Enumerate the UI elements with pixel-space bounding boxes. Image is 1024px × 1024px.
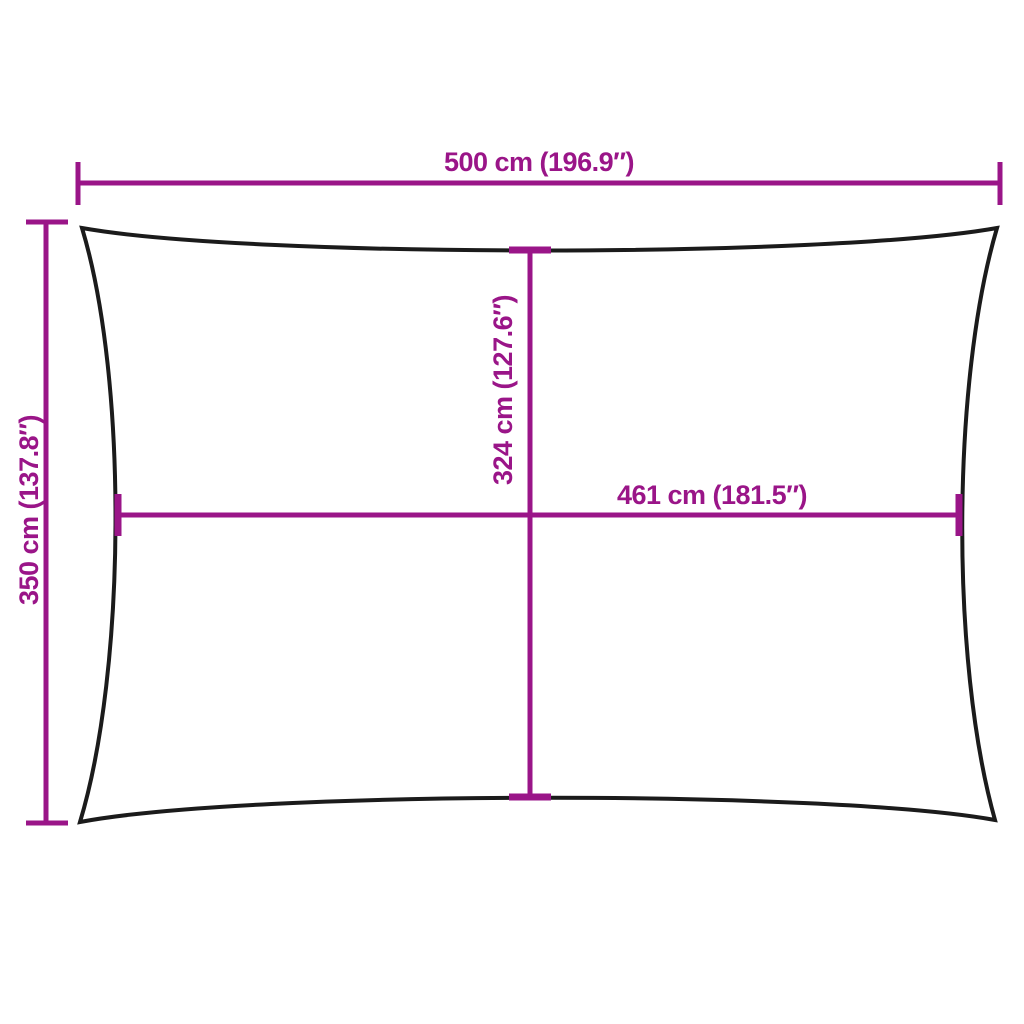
top-dimension-label: 500 cm (196.9″) bbox=[444, 147, 634, 177]
inner-vertical-dimension-label: 324 cm (127.6″) bbox=[488, 295, 518, 485]
left-dimension-label: 350 cm (137.8″) bbox=[14, 415, 44, 605]
dimension-diagram-page: 500 cm (196.9″) 350 cm (137.8″) 324 cm (… bbox=[0, 0, 1024, 1024]
dimension-diagram: 500 cm (196.9″) 350 cm (137.8″) 324 cm (… bbox=[0, 0, 1024, 1024]
inner-horizontal-dimension-label: 461 cm (181.5″) bbox=[617, 480, 807, 510]
